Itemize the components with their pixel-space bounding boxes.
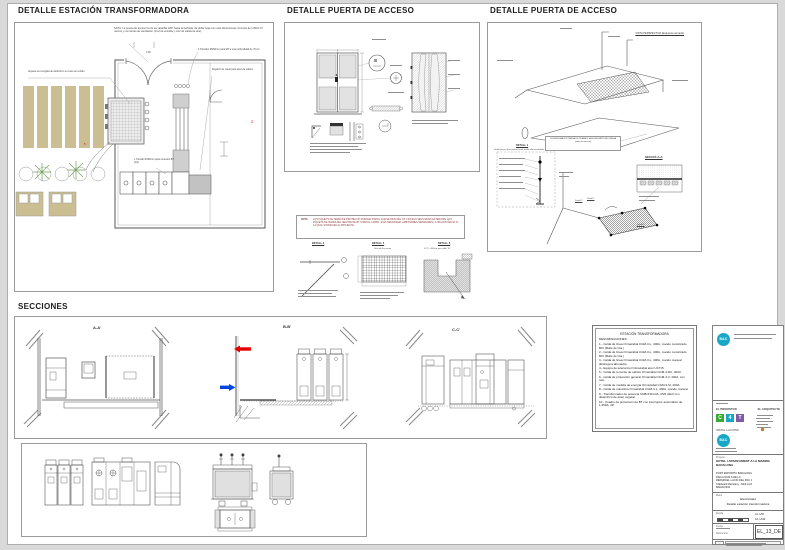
detall1-caption: Detall presa terra (armat) amb malla ele… <box>494 149 564 152</box>
equipment-elevations-drawing <box>21 443 365 535</box>
illegible-text-line <box>298 290 338 291</box>
illegible-text-line <box>412 123 448 124</box>
legend-item: 10.- Cuadro de protección de BT con inte… <box>599 401 690 409</box>
illegible-text-line <box>639 196 659 197</box>
sections-drawing <box>14 316 545 437</box>
illegible-text-line <box>412 120 458 121</box>
revision-mark-5: 5 <box>84 143 86 147</box>
arquitecte-label: EL ARQUITECTE <box>758 408 780 411</box>
referencia-label: Referencia <box>716 532 728 535</box>
detall-ref-2: Detall 2 <box>575 200 582 203</box>
plano-line-2: Detalle estación transformadora <box>713 503 783 507</box>
promotor-logo-t-icon: T <box>736 414 744 422</box>
illegible-text-line <box>672 80 688 81</box>
detall-ref-1: Detall 1 <box>587 198 594 201</box>
project-title: HOTEL I APARCAMENT A LA MARINA BADALONA <box>716 460 778 468</box>
section-cut-arrow-red <box>234 346 251 353</box>
arquitecte-stamp-mark <box>761 428 764 431</box>
illegible-text-line <box>715 451 737 452</box>
note-label: NOTA: <box>301 218 308 221</box>
illegible-text-line <box>310 149 362 150</box>
illegible-text-line <box>497 60 513 61</box>
promotor-logo-4-icon: 4 <box>726 414 734 422</box>
illegible-text-line <box>499 170 525 171</box>
titleblock-divider <box>753 523 754 539</box>
illegible-text-line <box>756 424 768 425</box>
note-mt-tubes: 4 Tubulars Ø160mm para MT a una profundi… <box>198 48 262 51</box>
illegible-text-line <box>390 65 402 66</box>
bac-logo-icon-2: BAC <box>717 434 730 447</box>
note-bt-tube: 1 Tubular Ø160mm para conexión BT (tub) <box>134 158 174 164</box>
section-cut-arrow-blue <box>220 384 236 391</box>
bac-logo-icon: BAC <box>717 333 730 346</box>
illegible-text-line <box>448 88 460 89</box>
illegible-text-line <box>499 164 523 165</box>
illegible-text-line <box>310 152 350 153</box>
scene: DETALLE ESTACIÓN TRANSFORMADORA DETALLE … <box>0 0 785 550</box>
panel-title-puerta-1: DETALLE PUERTA DE ACCESO <box>287 6 414 15</box>
illegible-text-line <box>310 143 366 144</box>
illegible-text-line <box>757 415 773 416</box>
escala-a3: A3: 1/100 <box>755 518 765 521</box>
promotor-label: EL PROMOTOR <box>716 408 737 411</box>
illegible-text-line <box>499 188 525 189</box>
note-text: LOS PIQUETS DE TERRA DE PROTECCIÓ PODRAN… <box>313 218 461 227</box>
seccio-aa-label: SECCIÓ A-A <box>645 156 663 160</box>
earthing-note-box: NOTA: LOS PIQUETS DE TERRA DE PROTECCIÓ … <box>296 215 465 239</box>
illegible-text-line <box>372 39 386 40</box>
note-door-opening: NOTA: La puerta de acceso ha de ser abat… <box>114 27 266 33</box>
graphic-scale-bar <box>717 518 749 523</box>
config-terres-label: CONFIGURACIÓ PRESA DE TERRES SEGONS MÈTO… <box>548 138 618 144</box>
legend-item: 9.- Transformador de potencia UMB 630 kV… <box>599 393 690 401</box>
title-block: BAC EL PROMOTOR EL ARQUITECTE C 4 T INST… <box>712 325 784 545</box>
illegible-text-line <box>639 200 655 201</box>
illegible-text-line <box>734 338 772 339</box>
illegible-text-line <box>360 292 404 293</box>
door-detail-drawing <box>284 22 478 170</box>
illegible-text-line <box>298 296 336 297</box>
detall1-title: DETALL 1 <box>516 144 528 147</box>
illegible-text-line <box>757 421 773 422</box>
illegible-text-line <box>360 295 398 296</box>
illegible-text-line <box>310 146 358 147</box>
illegible-text-line <box>448 60 460 61</box>
illegible-text-line <box>716 528 730 529</box>
illegible-text-line <box>448 74 460 75</box>
illegible-text-line <box>499 176 521 177</box>
note-cable-register: Registro de canal para paso de cables <box>212 68 266 71</box>
detall6-caption: S.T.C. 400cm per cable 'W' <box>424 248 478 251</box>
vista-perspectiva-label: VISTA PERSPECTIVA (Esquema armado) <box>598 32 684 35</box>
escala-a1: A1: 1/50 <box>755 513 764 516</box>
illegible-text-line <box>734 334 776 335</box>
panel-title-secciones: SECCIONES <box>18 302 68 311</box>
illegible-text-line <box>726 545 762 546</box>
detall5-title: DETALL 5 <box>372 242 384 245</box>
detall4-title: DETALL 4 <box>312 242 324 245</box>
detall5-caption: Unió de les terres <box>374 248 391 251</box>
promotor-logo-c-icon: C <box>716 414 724 422</box>
legend-title: ESTACIÓN TRANSFORMADORA <box>599 332 690 336</box>
illegible-text-line <box>757 427 771 428</box>
illegible-text-line <box>756 418 770 419</box>
legend-box: ESTACIÓN TRANSFORMADORA DENOMINACIONES: … <box>592 325 697 432</box>
illegible-text-line <box>716 403 728 404</box>
panel-title-puerta-2: DETALLE PUERTA DE ACCESO <box>490 6 617 15</box>
illegible-text-line <box>608 36 620 37</box>
address-line-5: BADALONA <box>716 486 730 489</box>
illegible-text-line <box>360 298 390 299</box>
trafo-plan-drawing <box>14 22 272 290</box>
plano-label: Plano <box>716 494 722 497</box>
dim-door-width: 1,80 <box>146 51 151 54</box>
illegible-text-line <box>499 158 525 159</box>
detall-ref-3: Detall 3 <box>637 224 644 227</box>
revision-mark-2: 2 <box>251 119 253 124</box>
note-dielectric-pit: Arqueta de recogida de dieléctrico en ca… <box>28 70 110 73</box>
illegible-text-line <box>559 172 573 173</box>
escala-label: Escala <box>716 512 723 515</box>
illegible-text-line <box>499 182 523 183</box>
stamp-c-icon: C <box>715 541 724 545</box>
detall6-title: DETALL 6 <box>438 242 450 245</box>
illegible-text-line <box>388 92 404 93</box>
illegible-text-line <box>716 448 736 449</box>
illegible-text-line <box>298 293 332 294</box>
drawing-number: EL_13_DE <box>755 525 783 539</box>
illegible-text-line <box>559 176 569 177</box>
installacions-label: INSTAL·LACIONS <box>716 429 739 432</box>
illegible-text-line <box>726 543 766 544</box>
illegible-text-line <box>560 28 572 29</box>
panel-title-estacion: DETALLE ESTACIÓN TRANSFORMADORA <box>18 6 189 15</box>
